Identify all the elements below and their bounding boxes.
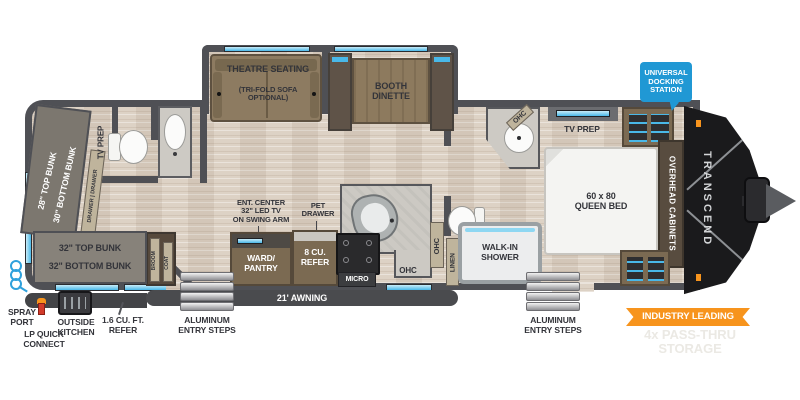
tv-icon — [556, 110, 610, 117]
storage-ghost-label: 4x PASS-THRU STORAGE — [622, 328, 758, 355]
docking-station-label: UNIVERSAL DOCKING STATION — [644, 69, 687, 94]
cap-accent-line — [686, 209, 751, 268]
bunk32-label: 32" TOP BUNK 32" BOTTOM BUNK — [49, 240, 132, 274]
broom-coat-closet: BROOM COAT — [146, 232, 176, 286]
vanity-sink — [158, 106, 192, 178]
ohc-label: OHC — [433, 231, 441, 261]
lp-quick-connect-icon — [36, 298, 48, 316]
range-stove — [336, 233, 380, 275]
double-bunk-bottom: 32" TOP BUNK 32" BOTTOM BUNK — [33, 231, 147, 284]
overhead-cabinets-strip: OVERHEAD CABINETS — [658, 140, 684, 268]
faucet-icon — [517, 136, 521, 140]
booth-dinette-bench — [328, 53, 352, 131]
booth-dinette-table: BOOTH DINETTE — [352, 58, 430, 124]
window-strip — [224, 46, 310, 52]
kitchen-ohc-strip: OHC — [430, 222, 444, 268]
cap-accent-line — [686, 131, 751, 190]
theatre-optional-label: (TRI-FOLD SOFA OPTIONAL) — [218, 86, 318, 103]
overhead-cabinets-label: OVERHEAD CABINETS — [667, 141, 676, 265]
ent-center-label: ENT. CENTER 32" LED TV ON SWING ARM — [226, 199, 296, 224]
tv-prep-bed-label: TV PREP — [552, 125, 612, 135]
outside-kitchen-label: OUTSIDE KITCHEN — [52, 318, 100, 337]
shower-label: WALK-IN SHOWER — [481, 243, 519, 262]
spray-port-icon — [8, 260, 28, 296]
awning-label: 21' AWNING — [277, 293, 327, 303]
pet-drawer-label: PET DRAWER — [296, 202, 340, 219]
docking-station-badge: UNIVERSAL DOCKING STATION — [640, 62, 692, 102]
bedroom-dresser-bottom — [620, 250, 670, 286]
refer16-label: 1.6 CU. FT. REFER — [96, 316, 150, 335]
theatre-seating-sofa: THEATRE SEATING (TRI-FOLD SOFA OPTIONAL) — [210, 54, 322, 122]
wall-segment — [151, 100, 158, 140]
refer8-label: 8 CU. REFER — [294, 248, 336, 267]
industry-leading-label: INDUSTRY LEADING — [642, 312, 734, 323]
window-strip — [334, 46, 428, 52]
entry-steps — [526, 272, 580, 312]
linen-label: LINEN — [449, 245, 456, 281]
queen-bed: 60 x 80 QUEEN BED — [544, 147, 658, 255]
industry-leading-ribbon: INDUSTRY LEADING — [626, 308, 750, 326]
booth-dinette-label: BOOTH DINETTE — [372, 81, 410, 101]
outside-kitchen-icon — [58, 291, 92, 315]
wall-segment — [200, 107, 207, 183]
entry-steps — [180, 272, 234, 312]
tv-prep-bunk-label: TV PREP — [98, 112, 107, 172]
theatre-label: THEATRE SEATING — [212, 64, 324, 74]
floorplan-canvas: 28" TOP BUNK 30" BOTTOM BUNK DRAWER | DR… — [0, 0, 800, 400]
entry-steps-label: ALUMINUM ENTRY STEPS — [172, 316, 242, 335]
entry-steps-label: ALUMINUM ENTRY STEPS — [518, 316, 588, 335]
tv-prep-wall-ledge — [548, 107, 618, 121]
faucet-icon — [390, 218, 395, 223]
ohc-label: OHC — [390, 267, 426, 276]
brand-logo: TRANSCEND — [701, 114, 713, 284]
hitch-coupler-icon — [766, 184, 796, 218]
toilet-icon — [108, 128, 150, 166]
microwave: MICRO — [338, 272, 376, 287]
coat-label: COAT — [165, 250, 171, 276]
window-strip — [55, 284, 119, 291]
broom-label: BROOM — [152, 246, 158, 276]
tv-icon — [237, 238, 263, 244]
ward-pantry-cabinet: WARD/ PANTRY — [230, 232, 292, 286]
leader-line — [316, 221, 317, 230]
queen-bed-label: 60 x 80 QUEEN BED — [575, 191, 628, 211]
micro-label: MICRO — [346, 276, 369, 284]
booth-dinette-bench — [430, 53, 454, 131]
ward-pantry-label: WARD/ PANTRY — [232, 254, 290, 273]
refrigerator-8cu: 8 CU. REFER — [292, 230, 338, 286]
